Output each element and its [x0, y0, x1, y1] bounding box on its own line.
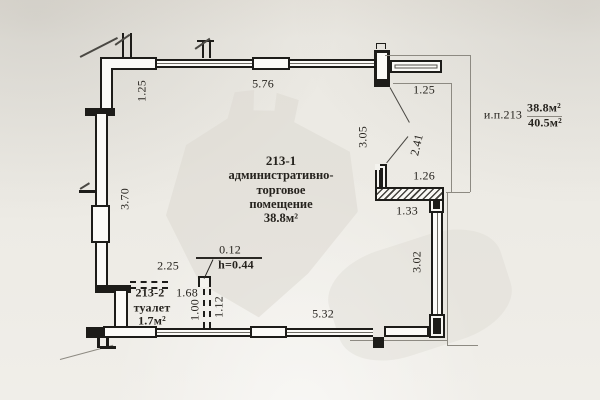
- dim-133-label: 1.33: [396, 204, 418, 219]
- unit-area-divider: [527, 116, 562, 117]
- floor-plan-scan: 1.25 5.76 1.25 3.05 2.41 1.26 1.33 3.02 …: [0, 0, 600, 400]
- wall-left-lower: [95, 243, 108, 287]
- wall-segment: [384, 326, 429, 337]
- boundary-line: [350, 340, 447, 341]
- wc-room-area: 1.7м²: [138, 314, 166, 329]
- main-room-label: 213-1 административно- торговое помещени…: [191, 154, 371, 225]
- window-bottom-left: [157, 328, 250, 337]
- wall-left-upper: [100, 68, 113, 110]
- dim-left-main-label: 3.70: [118, 188, 133, 210]
- wall-left-wc: [114, 291, 128, 329]
- unit-label: и.п.213: [484, 108, 522, 123]
- column-cap: [376, 79, 388, 85]
- dim-bottom-label: 5.32: [312, 307, 334, 322]
- wall-corner: [86, 327, 104, 338]
- window-bottom-right: [287, 328, 373, 337]
- window-right: [431, 213, 443, 316]
- leader-line: [386, 136, 408, 163]
- dim-top-right-label: 1.25: [413, 83, 435, 98]
- column-notch: [375, 164, 380, 170]
- survey-stub: [100, 346, 116, 349]
- dim-top-label: 5.76: [252, 77, 274, 92]
- section-tick: [79, 190, 96, 193]
- main-room-area: 38.8м²: [191, 211, 371, 225]
- wall-hatched: [375, 187, 444, 201]
- dim-wc-depth-label: 1.00: [188, 299, 203, 321]
- dim-step-height-label: h=0.44: [218, 258, 254, 273]
- wall-pier: [250, 326, 287, 338]
- axis-line: [209, 41, 211, 58]
- dim-step-width-label: 0.12: [219, 243, 241, 258]
- window-top-left: [157, 59, 252, 68]
- window-top-right: [290, 59, 374, 68]
- unit-area-lower: 40.5м²: [528, 116, 562, 131]
- boundary-line: [451, 83, 452, 192]
- wall-notch: [373, 337, 384, 348]
- dim-302-label: 3.02: [410, 251, 425, 273]
- wall-pier: [252, 57, 290, 70]
- column-right-bottom: [429, 314, 445, 338]
- axis-line: [130, 33, 132, 58]
- window-left: [91, 205, 110, 243]
- dim-wc-depth2-label: 1.12: [212, 296, 227, 318]
- section-tick: [80, 182, 90, 189]
- wc-room-number: 213-2: [136, 286, 165, 301]
- bracket-mark: [376, 43, 386, 49]
- main-room-name: помещение: [191, 197, 371, 211]
- wall-left-main: [95, 114, 108, 205]
- survey-tick: [80, 37, 118, 57]
- boundary-line: [446, 192, 470, 193]
- dim-left-upper-label: 1.25: [135, 80, 150, 102]
- partition-dashed: [130, 281, 168, 283]
- dim-126-label: 1.26: [413, 169, 435, 184]
- main-room-name: административно-: [191, 168, 371, 182]
- dim-wc-top-label: 2.25: [157, 259, 179, 274]
- unit-area-upper: 38.8м²: [527, 101, 561, 116]
- boundary-line: [470, 55, 471, 192]
- main-room-name: торговое: [191, 183, 371, 197]
- leader-line: [390, 87, 410, 122]
- boundary-line: [447, 192, 448, 340]
- dim-241-label: 2.41: [407, 133, 427, 158]
- balcony-slab: [390, 60, 442, 73]
- watermark-shape: [317, 215, 522, 375]
- dim-305-label: 3.05: [356, 126, 371, 148]
- main-room-number: 213-1: [191, 154, 371, 168]
- boundary-line: [447, 345, 478, 346]
- boundary-line: [385, 55, 470, 56]
